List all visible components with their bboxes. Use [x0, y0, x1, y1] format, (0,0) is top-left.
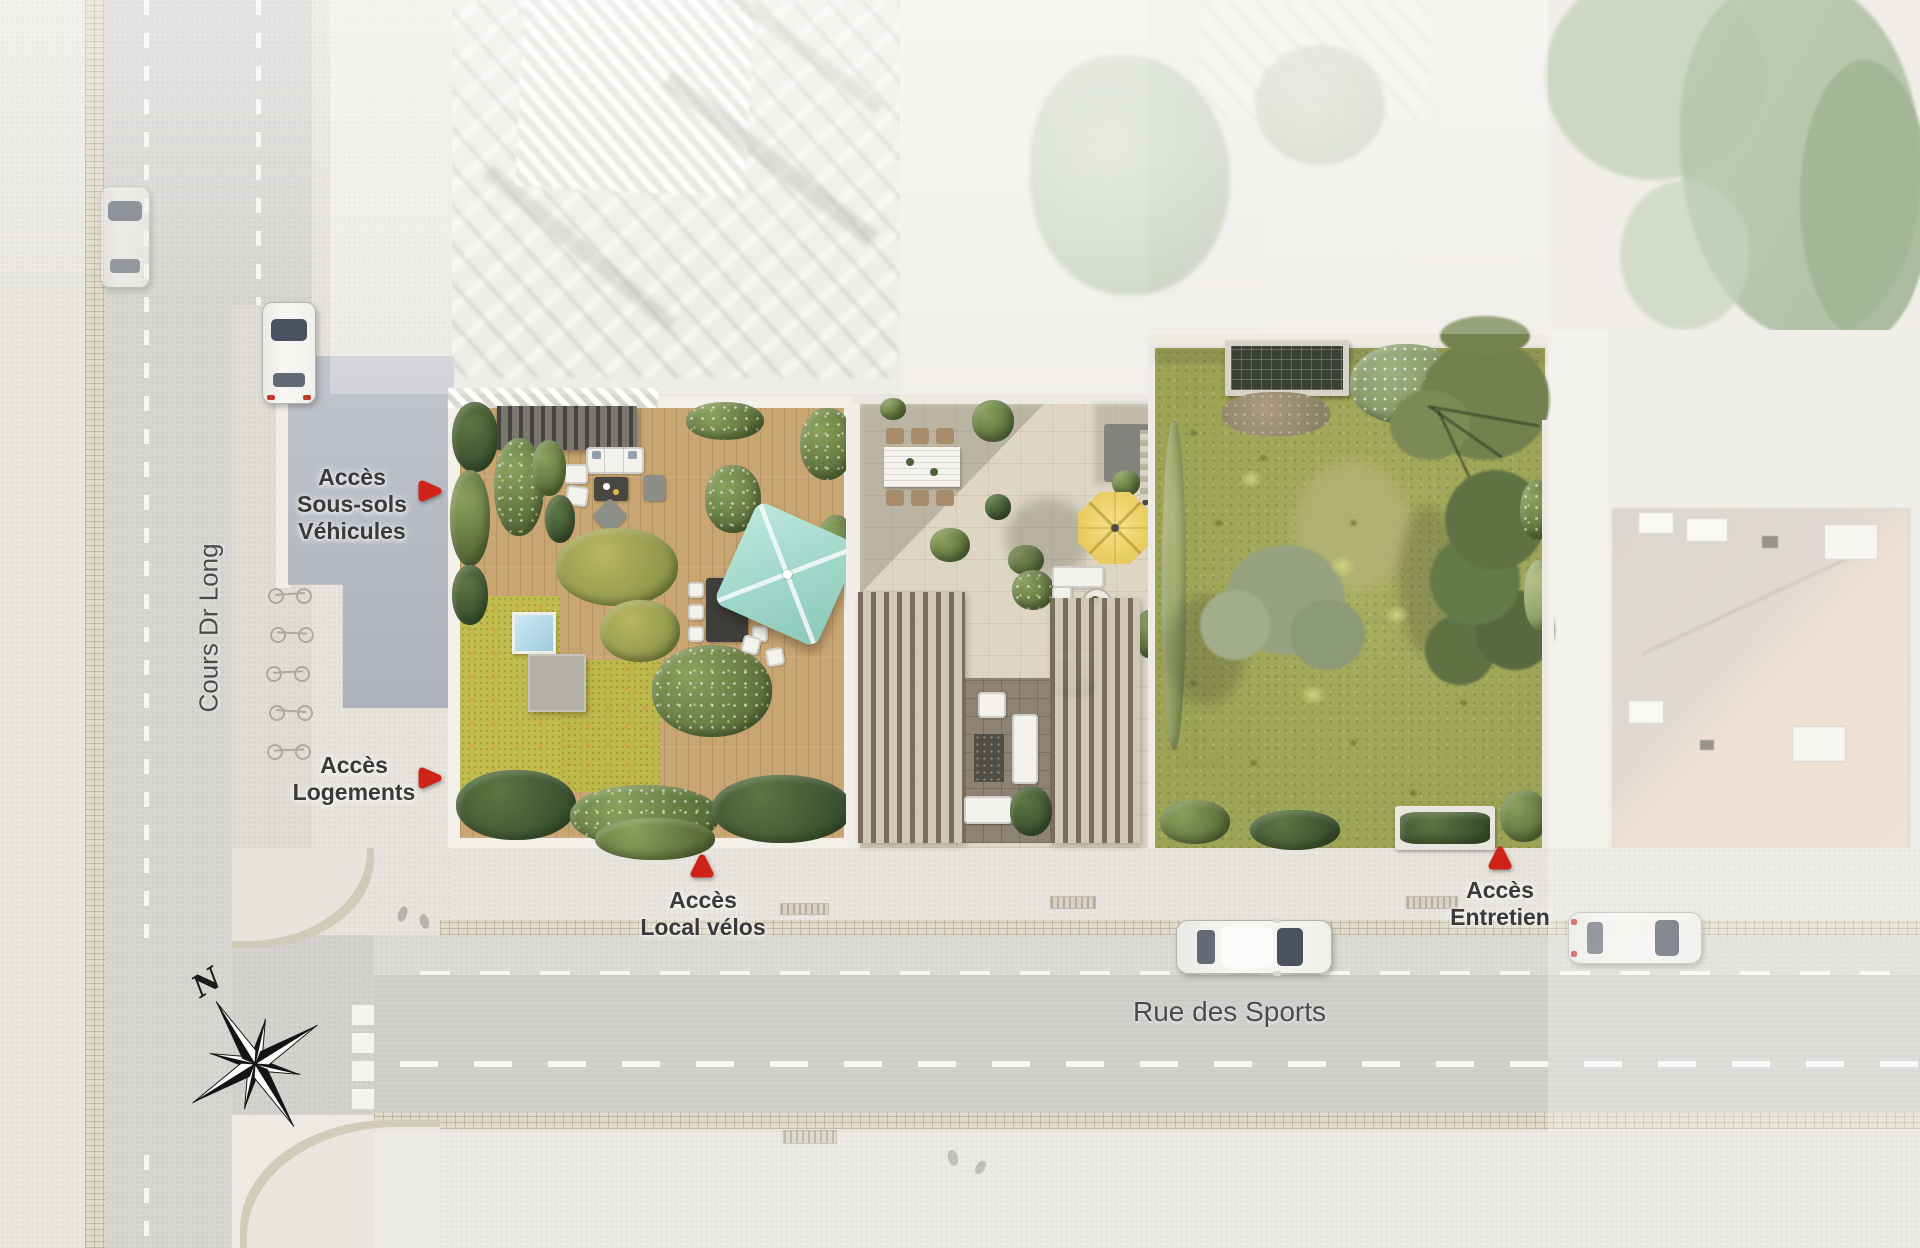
- grass-tuft: [1410, 790, 1417, 796]
- west-street-name: Cours Dr Long: [194, 543, 225, 712]
- planter: [450, 470, 490, 566]
- car-rear-window: [1197, 930, 1215, 964]
- bike-wheel: [296, 588, 312, 604]
- patio-chair: [936, 428, 954, 444]
- label-line: Logements: [293, 779, 416, 806]
- armchair: [564, 464, 588, 484]
- flower-bed-pink: [1222, 392, 1330, 436]
- compass-rose-icon: [175, 984, 335, 1144]
- pergola-grid-roof: [1231, 346, 1343, 390]
- long-table: [884, 447, 960, 487]
- car-mirror: [1273, 971, 1281, 976]
- car-windshield: [271, 319, 307, 341]
- roof-hut: [528, 654, 586, 712]
- patio-plants: [1010, 786, 1052, 836]
- car-taillight: [303, 395, 311, 400]
- garden-hedge: [1250, 810, 1340, 850]
- planter: [545, 495, 575, 543]
- access-maintenance-label: Accès Entretien: [1450, 877, 1550, 931]
- patio-chair: [911, 428, 929, 444]
- patio-chair: [936, 490, 954, 506]
- label-line: Accès: [293, 752, 416, 779]
- grass-tuft: [1190, 430, 1197, 436]
- car-windshield: [1277, 928, 1303, 966]
- right-arrow-marker: [417, 479, 443, 503]
- parked-car: [262, 302, 316, 404]
- car-mirror: [1273, 918, 1281, 923]
- parked-bike-icon: [267, 703, 315, 721]
- table-dish: [613, 489, 619, 495]
- parked-bike-icon: [266, 586, 314, 604]
- label-line: Entretien: [1450, 904, 1550, 931]
- patio-chair: [911, 490, 929, 506]
- patio-chair: [886, 428, 904, 444]
- sidewalk-grate: [780, 903, 829, 915]
- garden-hedge: [1160, 800, 1230, 844]
- fade-veil: [1148, 0, 1548, 334]
- table-bowl: [603, 483, 610, 490]
- grass-tuft: [1190, 680, 1197, 686]
- up-arrow-marker: [689, 853, 715, 879]
- shrub: [880, 398, 906, 420]
- planter: [452, 402, 498, 472]
- crosswalk-stripe: [352, 1033, 374, 1053]
- access-bikes-label: Accès Local vélos: [640, 887, 765, 941]
- bike-wheel: [269, 705, 285, 721]
- fade-veil: [374, 1132, 1920, 1248]
- parked-bike-icon: [268, 625, 316, 643]
- border-planting: [1162, 420, 1186, 750]
- driving-car: [1176, 920, 1332, 974]
- grass-clump: [1240, 470, 1262, 488]
- sidewalk-grate: [1050, 896, 1096, 909]
- parasol-pole: [783, 570, 792, 579]
- label-line: Local vélos: [640, 914, 765, 941]
- dining-chair: [688, 604, 704, 620]
- patio-sofa: [1012, 714, 1038, 784]
- table-plant: [906, 458, 914, 466]
- bike-wheel: [270, 627, 286, 643]
- skylight-glass: [512, 612, 556, 654]
- terrace-chair: [765, 647, 786, 668]
- sage-tree: [1200, 590, 1270, 660]
- parked-bike-icon: [264, 664, 312, 682]
- grass-tuft: [1350, 520, 1357, 526]
- shrub: [972, 400, 1014, 442]
- patio-chair: [886, 490, 904, 506]
- fade-veil: [1548, 330, 1920, 1132]
- label-line: Véhicules: [297, 518, 407, 545]
- bike-wheel: [267, 744, 283, 760]
- grass-tuft: [1250, 760, 1257, 766]
- access-vehicles-label: Accès Sous-sols Véhicules: [297, 464, 407, 545]
- pergola-slats: [858, 592, 965, 843]
- car-rear-window: [273, 373, 305, 387]
- umbrella-hub: [1111, 524, 1119, 532]
- table-plant: [930, 468, 938, 476]
- flower-bed: [556, 528, 678, 606]
- grass-tuft: [1260, 455, 1267, 461]
- label-line: Sous-sols: [297, 491, 407, 518]
- patio-rug: [974, 734, 1004, 782]
- right-arrow-marker: [417, 766, 443, 790]
- patio-armchair: [978, 692, 1006, 718]
- patio-bench: [964, 796, 1012, 824]
- garden-planter-plants: [1400, 812, 1490, 844]
- grass-clump: [1300, 685, 1326, 705]
- planter: [686, 402, 764, 440]
- grass-clump: [1385, 605, 1409, 625]
- shrub: [930, 528, 970, 562]
- crosswalk-stripe: [352, 1005, 374, 1025]
- corner-sofa: [1052, 566, 1104, 588]
- site-plan-canvas: Accès Sous-sols Véhicules Accès Logement…: [0, 0, 1920, 1248]
- flower-bed: [652, 645, 772, 737]
- bike-wheel: [294, 666, 310, 682]
- dining-chair: [688, 582, 704, 598]
- up-arrow-marker: [1487, 845, 1513, 871]
- hedge: [712, 775, 852, 843]
- sofa-pillow: [628, 451, 637, 459]
- coffee-table: [594, 477, 628, 501]
- bike-wheel: [298, 627, 314, 643]
- sofa-pillow: [592, 451, 601, 459]
- bike-wheel: [266, 666, 282, 682]
- fade-veil: [0, 0, 330, 300]
- fade-veil: [1548, 0, 1920, 330]
- flower-bed: [600, 600, 680, 662]
- label-line: Accès: [640, 887, 765, 914]
- pergola-slats: [1050, 598, 1140, 843]
- dining-chair: [688, 626, 704, 642]
- lane-marking: [144, 1155, 149, 1248]
- fade-veil: [330, 0, 1148, 394]
- bike-wheel: [268, 588, 284, 604]
- car-roof: [1221, 927, 1273, 967]
- grass-tuft: [1460, 700, 1467, 706]
- grass-tuft: [1350, 740, 1357, 746]
- south-street-name: Rue des Sports: [1133, 996, 1326, 1028]
- planter: [532, 440, 566, 496]
- planter: [452, 565, 488, 625]
- car-taillight: [267, 395, 275, 400]
- grass-clump: [1330, 555, 1356, 577]
- label-line: Accès: [1450, 877, 1550, 904]
- shrub: [985, 494, 1011, 520]
- hedge: [456, 770, 576, 840]
- lounge-chair: [643, 475, 665, 501]
- sage-tree: [1290, 600, 1365, 670]
- crosswalk-stripe: [352, 1089, 374, 1109]
- crosswalk-stripe: [352, 1061, 374, 1081]
- label-line: Accès: [297, 464, 407, 491]
- access-housing-label: Accès Logements: [293, 752, 416, 806]
- garden-hedge: [1500, 790, 1548, 842]
- grass-tuft: [1215, 520, 1222, 526]
